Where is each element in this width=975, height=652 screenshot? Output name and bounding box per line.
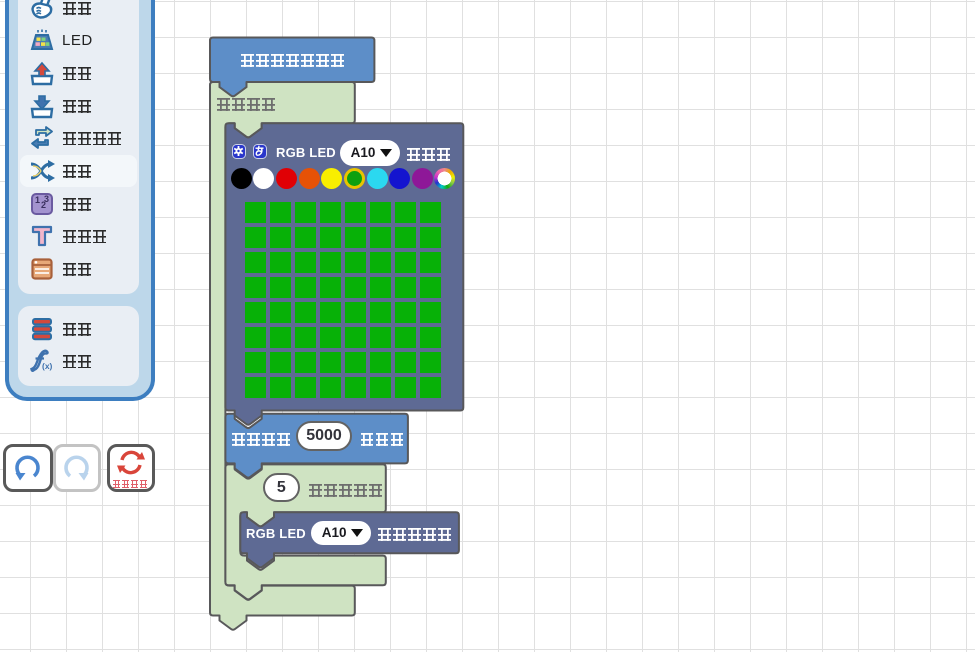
svg-text:3: 3 (44, 194, 49, 204)
svg-text:1: 1 (35, 195, 40, 205)
svg-text:(x): (x) (42, 361, 53, 371)
